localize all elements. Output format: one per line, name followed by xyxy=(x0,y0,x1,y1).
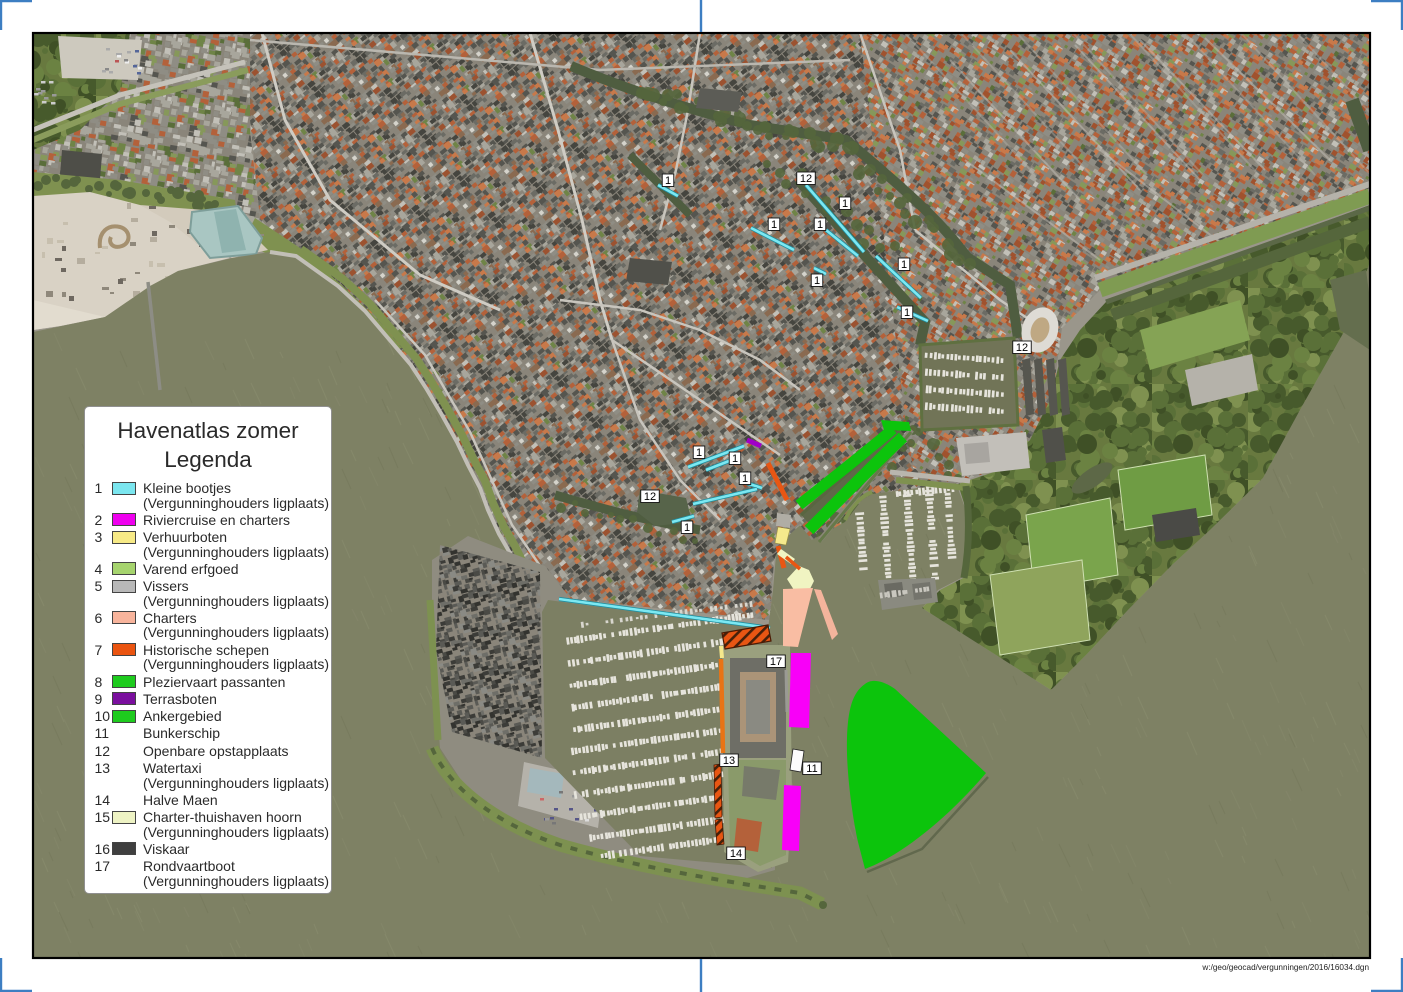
svg-text:1: 1 xyxy=(742,473,748,485)
svg-text:1: 1 xyxy=(904,307,910,319)
svg-text:1: 1 xyxy=(842,198,848,210)
svg-text:1: 1 xyxy=(901,259,907,271)
svg-text:1: 1 xyxy=(771,219,777,231)
svg-text:12: 12 xyxy=(644,491,656,503)
svg-text:1: 1 xyxy=(814,275,820,287)
svg-text:1: 1 xyxy=(684,522,690,534)
svg-text:12: 12 xyxy=(800,173,812,185)
svg-text:14: 14 xyxy=(730,848,742,860)
svg-text:1: 1 xyxy=(817,219,823,231)
svg-text:11: 11 xyxy=(806,763,817,775)
svg-text:12: 12 xyxy=(1016,342,1028,354)
svg-text:17: 17 xyxy=(770,656,782,668)
svg-text:1: 1 xyxy=(732,453,738,465)
svg-text:w:/geo/geocad/vergunningen/201: w:/geo/geocad/vergunningen/2016/16034.dg… xyxy=(1201,963,1369,972)
svg-text:1: 1 xyxy=(696,447,702,459)
svg-text:1: 1 xyxy=(665,175,671,187)
svg-text:13: 13 xyxy=(723,755,735,767)
